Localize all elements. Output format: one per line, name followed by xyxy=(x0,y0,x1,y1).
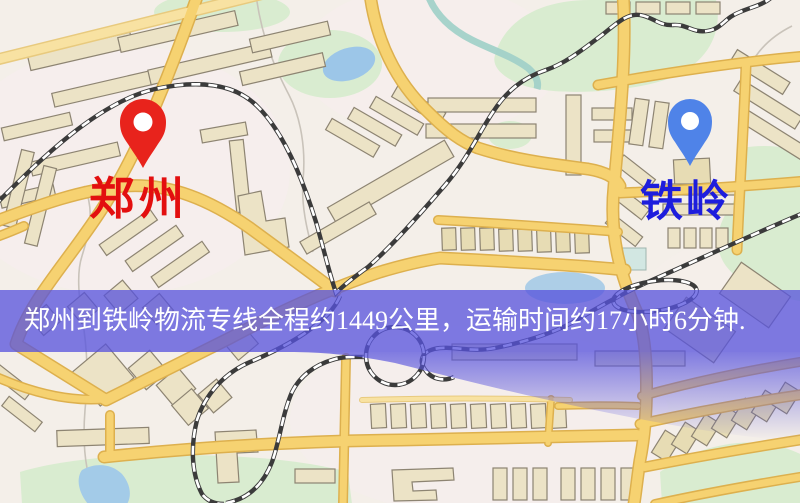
location-pin-icon xyxy=(113,98,173,170)
map-canvas[interactable] xyxy=(0,0,800,503)
map-screenshot: 郑州 铁岭 郑州到铁岭物流专线全程约1449公里，运输时间约17小时6分钟. xyxy=(0,0,800,503)
route-banner-text: 郑州到铁岭物流专线全程约1449公里，运输时间约17小时6分钟. xyxy=(24,290,794,352)
origin-label: 郑州 xyxy=(84,177,194,222)
location-pin-icon xyxy=(660,96,720,168)
destination-pin[interactable] xyxy=(660,96,720,168)
destination-label: 铁岭 xyxy=(634,181,738,224)
origin-pin[interactable] xyxy=(113,98,173,170)
